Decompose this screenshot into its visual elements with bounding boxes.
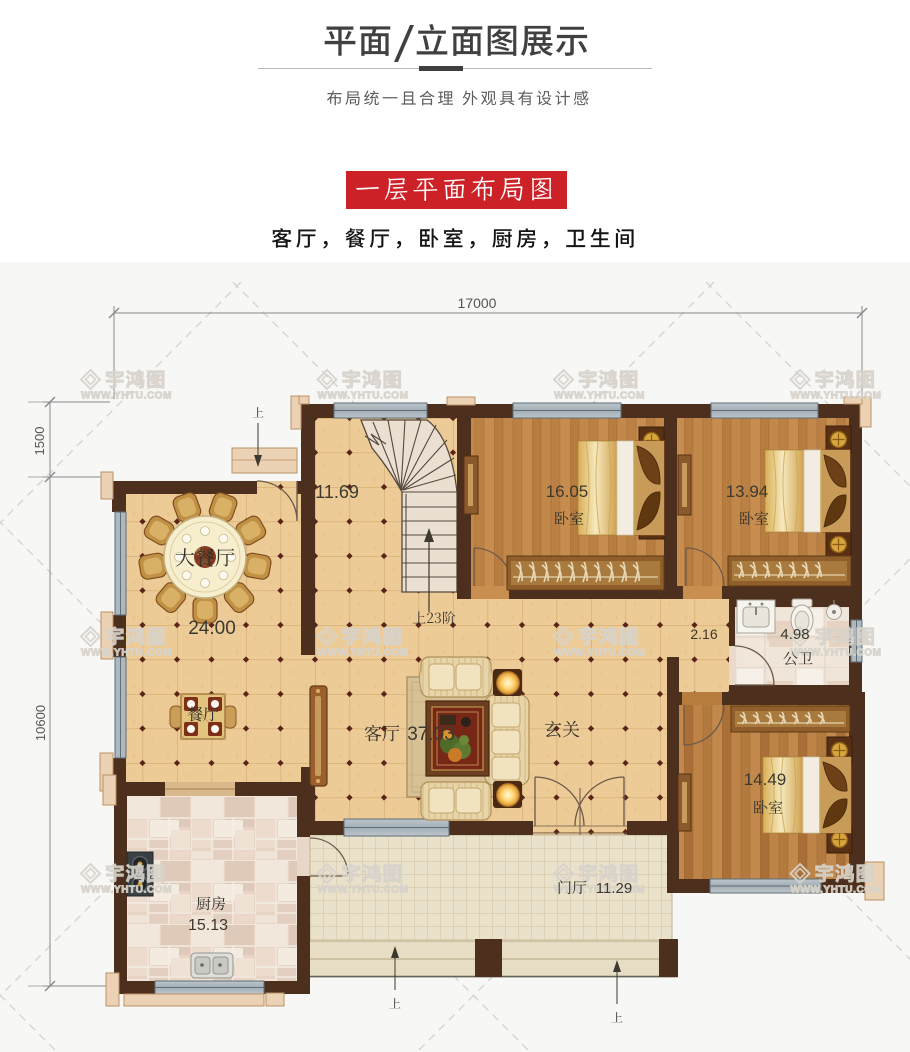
svg-text:17000: 17000 (458, 295, 497, 311)
svg-text:11.29: 11.29 (596, 880, 632, 897)
svg-text:13.94: 13.94 (726, 482, 769, 501)
svg-text:14.49: 14.49 (744, 770, 787, 789)
svg-text:11.69: 11.69 (315, 482, 359, 502)
svg-text:10600: 10600 (33, 705, 48, 741)
svg-text:15.13: 15.13 (188, 917, 228, 934)
svg-text:2.16: 2.16 (690, 626, 717, 642)
svg-text:4.98: 4.98 (780, 626, 809, 643)
svg-text:16.05: 16.05 (546, 482, 589, 501)
svg-text:24.00: 24.00 (188, 618, 236, 639)
svg-text:1500: 1500 (32, 427, 47, 456)
svg-text:37.03: 37.03 (407, 724, 455, 745)
